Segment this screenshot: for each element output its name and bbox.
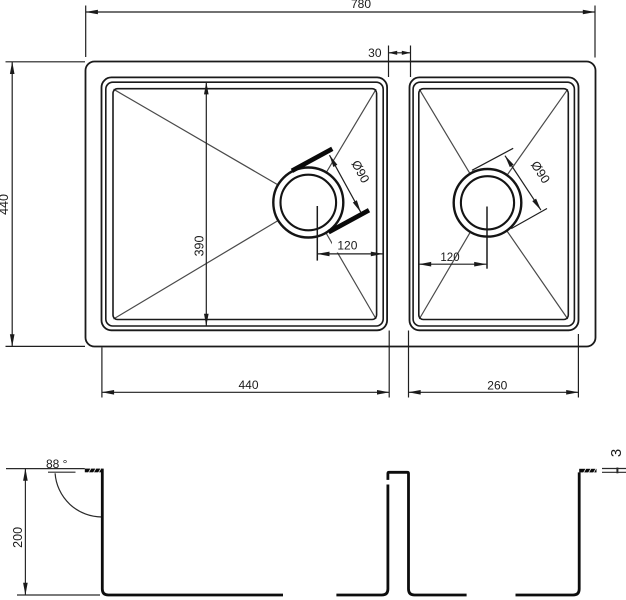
svg-text:440: 440	[0, 194, 11, 215]
svg-text:390: 390	[193, 236, 207, 257]
svg-text:Ø90: Ø90	[528, 158, 553, 185]
svg-text:88 °: 88 °	[46, 457, 68, 471]
svg-text:440: 440	[238, 378, 258, 392]
svg-text:120: 120	[337, 239, 357, 253]
svg-text:260: 260	[487, 379, 507, 393]
svg-text:30: 30	[368, 46, 382, 60]
svg-text:780: 780	[351, 0, 371, 11]
svg-text:200: 200	[11, 527, 25, 548]
svg-text:120: 120	[440, 252, 459, 264]
svg-text:Ø90: Ø90	[348, 158, 372, 185]
svg-text:3: 3	[608, 449, 625, 457]
